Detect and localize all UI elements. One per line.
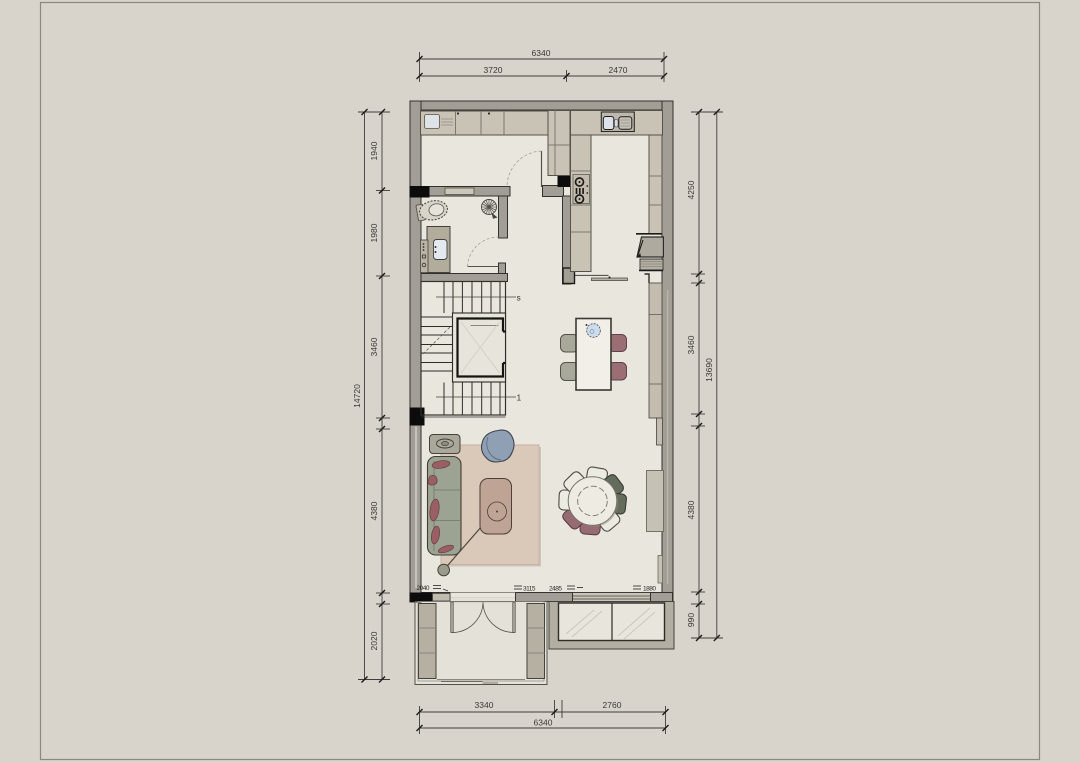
svg-text:4380: 4380 <box>686 500 696 519</box>
svg-text:3460: 3460 <box>686 335 696 354</box>
svg-text:2485: 2485 <box>549 586 562 593</box>
svg-text:1940: 1940 <box>369 141 379 160</box>
svg-text:4380: 4380 <box>369 501 379 520</box>
svg-text:4250: 4250 <box>686 180 696 199</box>
svg-text:3115: 3115 <box>523 586 536 593</box>
svg-text:2020: 2020 <box>369 631 379 650</box>
svg-text:1: 1 <box>517 393 522 403</box>
svg-text:3340: 3340 <box>475 700 494 710</box>
svg-text:3720: 3720 <box>484 65 503 75</box>
svg-text:6340: 6340 <box>534 718 553 728</box>
svg-text:3460: 3460 <box>369 337 379 356</box>
svg-text:1880: 1880 <box>643 586 656 593</box>
svg-text:990: 990 <box>686 613 696 627</box>
svg-text:2470: 2470 <box>609 65 628 75</box>
svg-text:13690: 13690 <box>704 358 714 382</box>
svg-text:2040: 2040 <box>417 585 430 592</box>
svg-text:s: s <box>517 293 521 303</box>
svg-text:6340: 6340 <box>532 48 551 58</box>
svg-text:14720: 14720 <box>352 384 362 408</box>
svg-text:2760: 2760 <box>603 700 622 710</box>
svg-text:1980: 1980 <box>369 223 379 242</box>
